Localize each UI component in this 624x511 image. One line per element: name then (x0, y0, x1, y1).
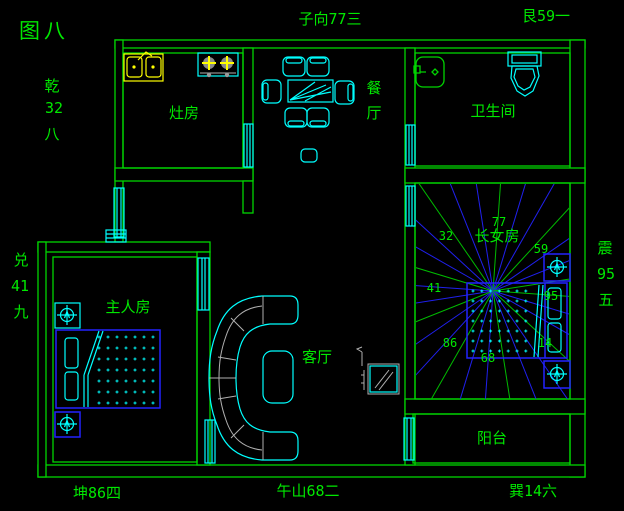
room-labels: 灶房 餐 厅 卫生间 主人房 客厅 长女房 阳台 (105, 79, 519, 447)
bathroom-sink-icon (414, 57, 444, 87)
compass-ne: 艮59一 (522, 7, 570, 25)
floorplan-canvas[interactable]: 32 77 59 41 95 86 68 14 灶房 餐 厅 卫生间 主人房 客… (0, 0, 624, 511)
compass-w: 41 (11, 277, 29, 295)
stove-icon (198, 53, 238, 77)
nightstand-lamp-icon (55, 412, 80, 437)
compass-w: 九 (13, 303, 28, 321)
dining-table (288, 80, 333, 102)
ceiling-target-icon (544, 361, 570, 388)
chair (307, 108, 329, 127)
daughter-room-label: 长女房 (474, 227, 519, 245)
star-number: 59 (534, 242, 548, 256)
kitchen-sink-icon (124, 52, 163, 81)
sofa (209, 296, 298, 460)
chair (283, 57, 305, 76)
compass-labels: 图八 乾 32 八 子向77三 艮59一 兑 41 九 震 95 五 坤86四 … (11, 7, 615, 502)
star-number: 68 (481, 351, 495, 365)
figure-title: 图八 (19, 19, 69, 43)
compass-s: 午山68二 (276, 482, 339, 500)
compass-e: 震 (597, 239, 612, 257)
cad-floorplan-view: 32 77 59 41 95 86 68 14 灶房 餐 厅 卫生间 主人房 客… (0, 0, 624, 511)
compass-se: 巽14六 (509, 482, 557, 500)
chair (335, 81, 354, 104)
master-bed (56, 330, 160, 408)
bathroom-label: 卫生间 (470, 102, 515, 120)
living-room-label: 客厅 (302, 348, 332, 366)
chair (285, 108, 307, 127)
dining-label: 厅 (366, 104, 381, 122)
kitchen-label: 灶房 (169, 104, 199, 122)
dining-label: 餐 (366, 79, 381, 97)
compass-nw: 32 (45, 99, 63, 117)
ceiling-target-icon (544, 254, 570, 281)
star-number: 41 (427, 281, 441, 295)
chair (262, 80, 281, 103)
compass-nw: 八 (44, 125, 59, 143)
tv-icon (357, 347, 399, 394)
master-bedroom-label: 主人房 (105, 298, 150, 316)
coffee-table (263, 351, 293, 403)
compass-n: 子向77三 (298, 10, 361, 28)
compass-e: 95 (597, 265, 615, 283)
nightstand-lamp-icon (55, 303, 80, 328)
compass-nw: 乾 (44, 77, 59, 95)
dining-chairs (262, 57, 354, 162)
compass-e: 五 (598, 291, 613, 309)
compass-w: 兑 (13, 251, 28, 269)
toilet-icon (508, 52, 541, 96)
star-number: 95 (544, 289, 558, 303)
star-number: 86 (443, 336, 457, 350)
balcony-label: 阳台 (477, 429, 507, 447)
stool (301, 149, 317, 162)
chair (307, 57, 329, 76)
star-number: 32 (439, 229, 453, 243)
compass-sw: 坤86四 (73, 484, 121, 502)
star-number: 14 (538, 336, 552, 350)
